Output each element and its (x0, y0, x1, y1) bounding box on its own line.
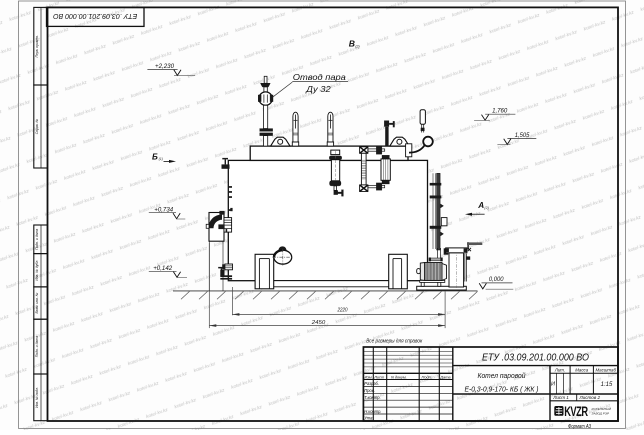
svg-text:И: И (551, 382, 555, 388)
svg-text:Масштаб: Масштаб (595, 368, 616, 373)
svg-text:(2): (2) (484, 206, 488, 210)
svg-text:Разраб.: Разраб. (364, 381, 379, 386)
svg-text:Ду 32: Ду 32 (305, 84, 331, 94)
svg-text:Масса: Масса (575, 368, 589, 373)
svg-text:1,760: 1,760 (492, 108, 508, 115)
svg-text:Листов 2: Листов 2 (579, 395, 601, 400)
svg-text:Н.контр.: Н.контр. (364, 409, 381, 414)
svg-text:Взам. инв. №: Взам. инв. № (35, 292, 39, 313)
svg-text:+2,230: +2,230 (155, 63, 175, 70)
svg-text:Перв. примен.: Перв. примен. (35, 35, 39, 58)
svg-text:(1): (1) (159, 157, 163, 161)
svg-text:2220: 2220 (337, 308, 349, 314)
svg-text:КОТЕЛЬНЫЙ: КОТЕЛЬНЫЙ (592, 407, 612, 411)
svg-text:В: В (349, 39, 355, 49)
svg-text:0,000: 0,000 (489, 276, 504, 283)
svg-text:(2): (2) (355, 45, 359, 49)
svg-text:Е-0,3-0,9-170- КБ ( ЖК ): Е-0,3-0,9-170- КБ ( ЖК ) (465, 386, 539, 393)
svg-text:2450: 2450 (311, 320, 327, 326)
svg-text:Все размеры для справок: Все размеры для справок (366, 339, 422, 345)
svg-text:1:15: 1:15 (601, 382, 613, 388)
svg-text:Инв. № дубл.: Инв. № дубл. (35, 260, 39, 281)
svg-text:N докум.: N докум. (391, 374, 407, 379)
svg-text:Пров.: Пров. (364, 388, 375, 393)
svg-text:Т.контр.: Т.контр. (364, 395, 381, 400)
svg-text:Лит.: Лит. (554, 368, 565, 373)
svg-text:Лист 1: Лист 1 (552, 395, 569, 400)
svg-text:Лист: Лист (373, 374, 385, 379)
svg-text:Котел паровой: Котел паровой (478, 372, 526, 380)
svg-text:ЗАВОД РЭР: ЗАВОД РЭР (592, 412, 611, 416)
svg-text:Подп.: Подп. (422, 374, 432, 379)
svg-text:Утв.: Утв. (364, 416, 373, 421)
svg-text:А: А (477, 201, 484, 210)
svg-text:Отвод пара: Отвод пара (293, 72, 346, 82)
svg-text:Справ. №: Справ. № (35, 118, 39, 134)
svg-text:Изм.: Изм. (365, 374, 373, 379)
svg-text:Б: Б (152, 152, 158, 161)
svg-text:Дата: Дата (439, 374, 451, 379)
svg-text:Инв. № подл.: Инв. № подл. (35, 387, 39, 408)
svg-text:Формат А3: Формат А3 (568, 424, 592, 430)
svg-text:ЕТУ .03.09.201.00.000 ВО: ЕТУ .03.09.201.00.000 ВО (53, 12, 137, 21)
svg-text:Подп. и дата: Подп. и дата (35, 229, 39, 250)
svg-text:ЕТУ .03.09.201.00.000 ВО: ЕТУ .03.09.201.00.000 ВО (482, 352, 589, 364)
svg-text:KVZR: KVZR (564, 404, 588, 419)
svg-text:Подп. и дата: Подп. и дата (35, 336, 39, 357)
